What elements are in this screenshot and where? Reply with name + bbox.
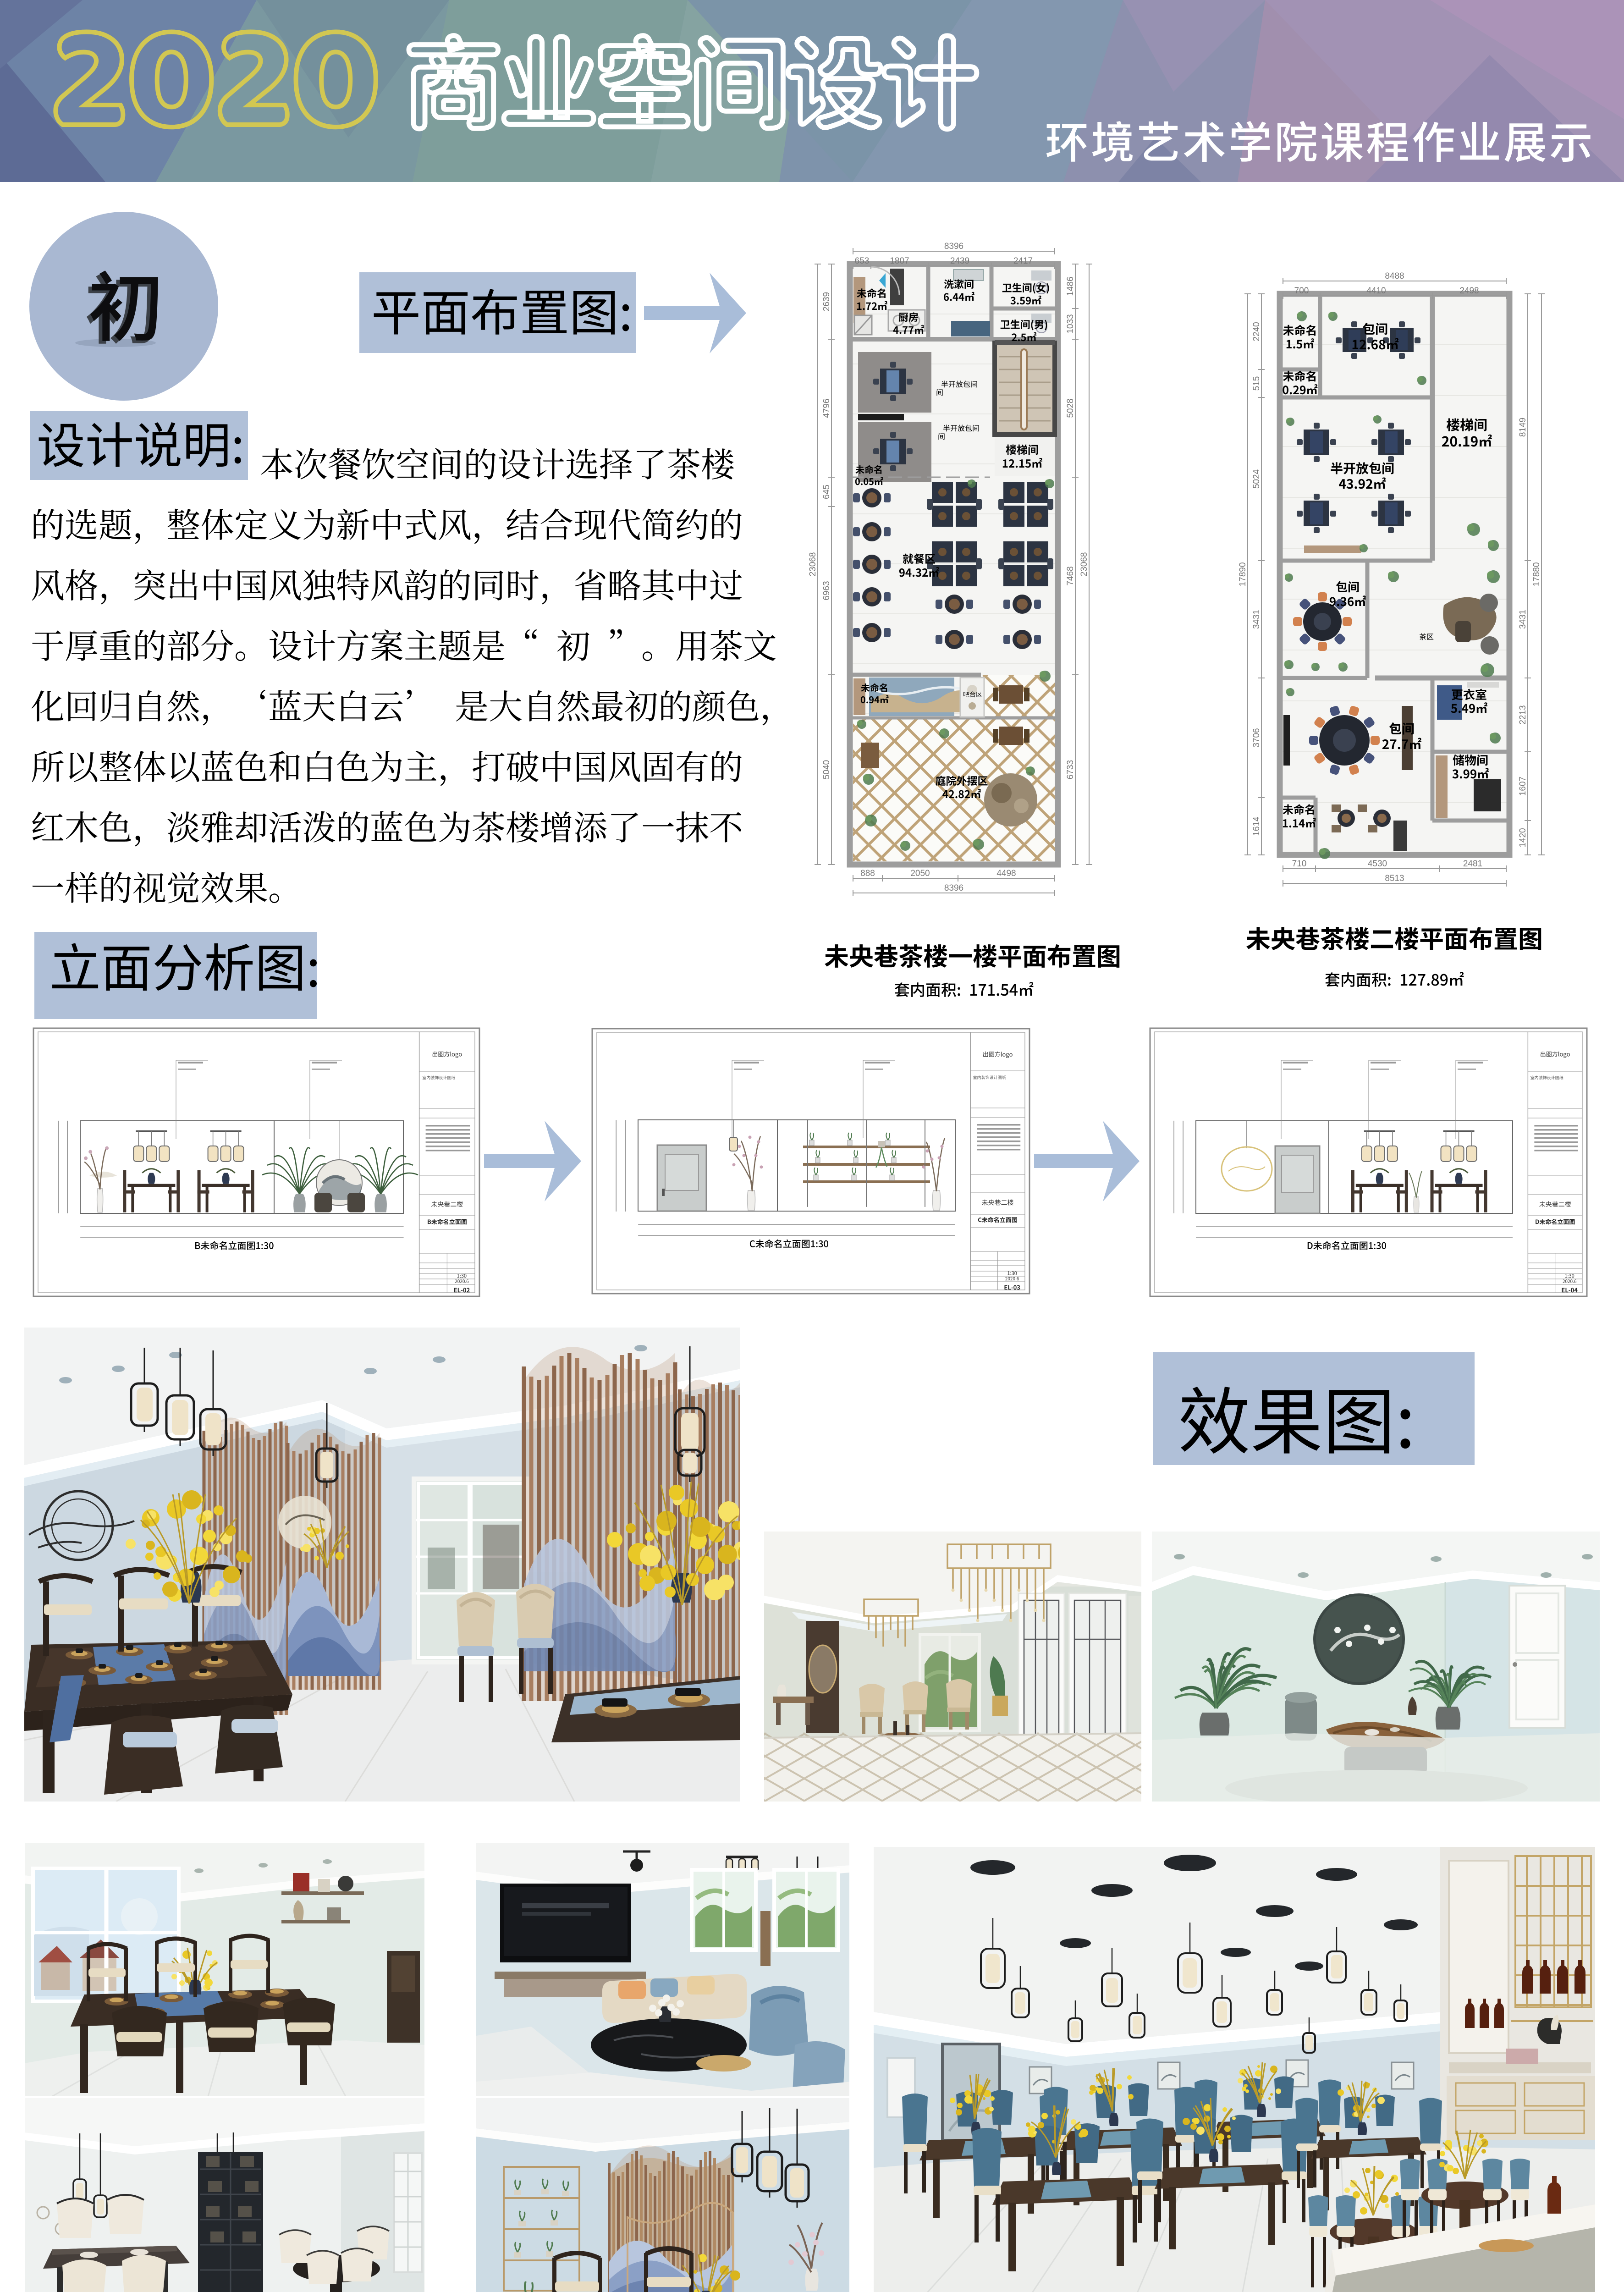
svg-text:700: 700 xyxy=(1294,286,1309,296)
svg-text:1807: 1807 xyxy=(890,256,909,266)
svg-text:4796: 4796 xyxy=(822,398,831,418)
svg-text:23068: 23068 xyxy=(808,552,818,577)
svg-text:888: 888 xyxy=(860,869,875,878)
svg-text:2213: 2213 xyxy=(1518,705,1528,724)
svg-text:1486: 1486 xyxy=(1066,276,1075,296)
svg-text:1033: 1033 xyxy=(1066,314,1075,333)
svg-text:1420: 1420 xyxy=(1518,828,1528,847)
svg-text:3706: 3706 xyxy=(1252,728,1261,747)
svg-text:2639: 2639 xyxy=(822,292,831,311)
svg-text:6733: 6733 xyxy=(1066,760,1075,779)
svg-text:4498: 4498 xyxy=(996,869,1016,878)
svg-text:5024: 5024 xyxy=(1252,469,1261,489)
svg-text:653: 653 xyxy=(855,256,870,266)
svg-text:17890: 17890 xyxy=(1238,562,1248,587)
svg-text:5040: 5040 xyxy=(822,760,831,779)
svg-text:4530: 4530 xyxy=(1368,859,1387,869)
svg-text:2481: 2481 xyxy=(1463,859,1482,869)
svg-text:2050: 2050 xyxy=(910,869,930,878)
svg-text:8488: 8488 xyxy=(1385,271,1404,281)
svg-text:3431: 3431 xyxy=(1252,610,1261,629)
svg-text:6963: 6963 xyxy=(822,581,831,600)
svg-text:1607: 1607 xyxy=(1518,777,1528,796)
svg-text:7468: 7468 xyxy=(1066,566,1075,585)
svg-text:8396: 8396 xyxy=(944,883,963,893)
svg-text:5028: 5028 xyxy=(1066,398,1075,418)
svg-text:710: 710 xyxy=(1292,859,1307,869)
svg-text:8149: 8149 xyxy=(1518,418,1528,437)
svg-text:2498: 2498 xyxy=(1459,286,1479,296)
svg-text:23068: 23068 xyxy=(1079,552,1089,577)
svg-text:2240: 2240 xyxy=(1252,322,1261,341)
svg-text:17880: 17880 xyxy=(1532,562,1541,587)
svg-text:3431: 3431 xyxy=(1518,610,1528,629)
svg-text:1614: 1614 xyxy=(1252,816,1261,836)
svg-text:8396: 8396 xyxy=(944,242,963,251)
svg-text:2417: 2417 xyxy=(1013,256,1033,266)
svg-text:2439: 2439 xyxy=(950,256,969,266)
svg-text:8513: 8513 xyxy=(1385,874,1404,883)
svg-text:645: 645 xyxy=(822,485,831,499)
svg-text:515: 515 xyxy=(1252,376,1261,391)
svg-text:4410: 4410 xyxy=(1366,286,1386,296)
